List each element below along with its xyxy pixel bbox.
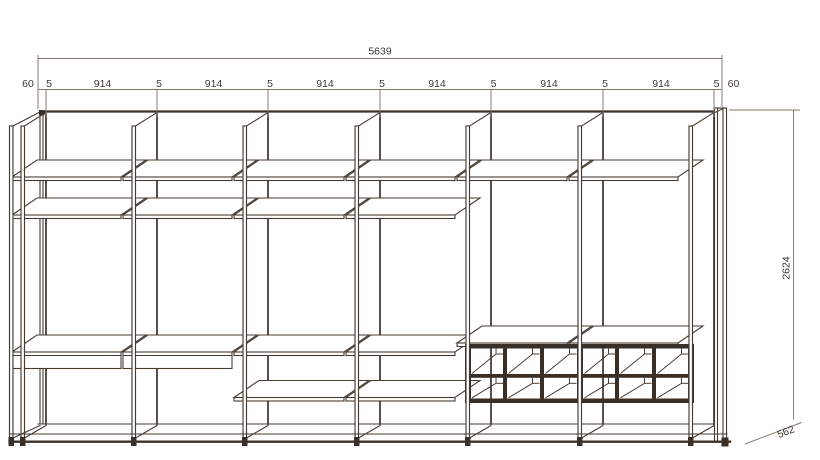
cubby-divider: [615, 348, 619, 399]
partition-top-edge: [693, 113, 715, 127]
cubby-cell: [658, 349, 689, 374]
total-width-label: 5639: [368, 46, 392, 58]
dimension-width-segments: 60 5 914 5 914 5 914 5 914 5 914 5 914 5…: [22, 59, 739, 118]
segment-label: 914: [652, 78, 670, 90]
partition-top-edge: [582, 113, 604, 127]
segment-label: 5: [379, 78, 385, 90]
shelf: [569, 326, 703, 347]
segment-label: 5: [714, 78, 720, 90]
cubby-divider: [540, 348, 544, 399]
left-frame-front-edge: [10, 126, 14, 441]
partition-top-edge: [136, 113, 158, 127]
foot-rail-edge: [582, 426, 604, 439]
cubby-cell: [658, 378, 689, 398]
segment-label: 60: [22, 78, 34, 90]
segment-label: 914: [540, 78, 558, 90]
cubby-cell: [585, 378, 616, 398]
elevation-drawing-svg: 5639 60 5 914 5 914 5 914 5 914 5 914 5: [0, 0, 820, 460]
segment-label: 914: [316, 78, 334, 90]
partition-post: [355, 126, 359, 438]
partition-post: [689, 126, 693, 438]
foot-rail-edge: [693, 426, 715, 439]
cubby-divider: [652, 348, 656, 399]
partition-post: [21, 126, 25, 438]
foot-rail-edge: [247, 426, 269, 439]
segment-label: 5: [602, 78, 608, 90]
partition-top-edge: [247, 113, 269, 127]
base-plinth: [9, 426, 731, 447]
partition-post: [578, 126, 582, 438]
segment-label: 5: [156, 78, 162, 90]
foot-rail-edge: [470, 426, 492, 439]
shelf: [569, 160, 703, 181]
segment-label: 60: [728, 78, 740, 90]
wardrobe-technical-drawing: 5639 60 5 914 5 914 5 914 5 914 5 914 5: [0, 0, 820, 460]
right-side-panel: [715, 108, 727, 442]
cubby-cell: [621, 349, 652, 374]
segment-label: 5: [46, 78, 52, 90]
segment-label: 914: [428, 78, 446, 90]
dimension-depth: 562: [745, 423, 802, 445]
segment-label: 914: [205, 78, 223, 90]
cubby-cell: [585, 349, 616, 374]
cubby-cell: [472, 349, 503, 374]
dimension-height: 2624: [729, 110, 800, 420]
partition-post: [243, 126, 247, 438]
cubby-cell: [509, 349, 540, 374]
segment-label: 5: [491, 78, 497, 90]
shelf: [346, 198, 480, 219]
segment-label: 5: [267, 78, 273, 90]
shelf: [346, 381, 480, 402]
partition-top-edge: [359, 113, 381, 127]
cubby-divider: [503, 348, 507, 399]
dimension-total-width: 5639: [38, 46, 722, 67]
partition-post: [466, 126, 470, 438]
partition-post: [132, 126, 136, 438]
foot-rail-edge: [136, 426, 158, 439]
cubby-cell: [546, 349, 577, 374]
foot-rail-edge: [359, 426, 381, 439]
segment-label: 914: [94, 78, 112, 90]
partition-top-edge: [470, 113, 492, 127]
cubby-cell: [509, 378, 540, 398]
cubby-cell: [621, 378, 652, 398]
right-panel-slab: [715, 108, 727, 442]
height-label: 2624: [781, 256, 793, 280]
cubby-cell: [546, 378, 577, 398]
